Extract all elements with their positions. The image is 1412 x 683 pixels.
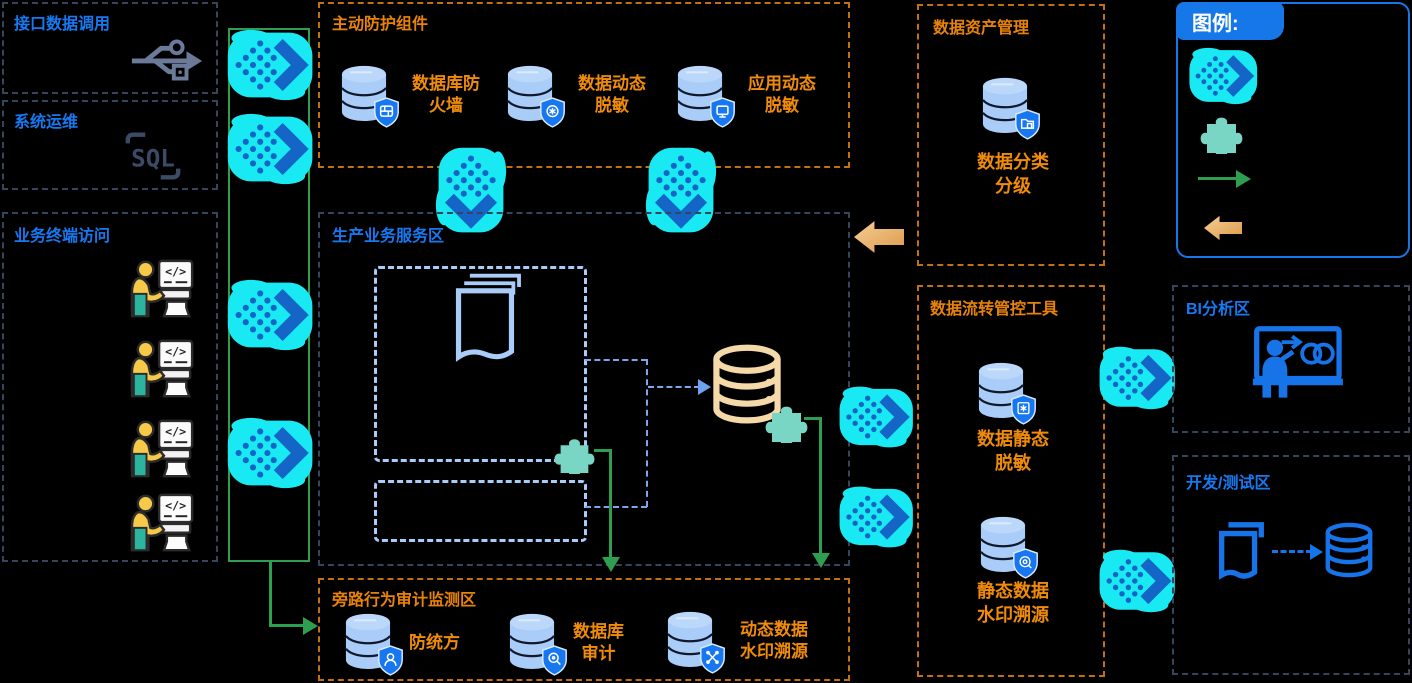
database-shield-watermark-icon xyxy=(979,515,1037,577)
component-label: 防统方 xyxy=(409,632,460,654)
terminal-user-icon xyxy=(130,338,196,400)
component-label: 静态数据 水印溯源 xyxy=(938,579,1088,628)
plugin-puzzle-icon xyxy=(551,430,597,474)
plugin-puzzle-icon xyxy=(1196,108,1246,154)
connector-line xyxy=(646,359,648,507)
database-shield-search-icon xyxy=(508,612,566,674)
architecture-diagram: SQL </> 接口数据调用 系统运维 业务终 xyxy=(0,0,1412,683)
component-dynamic-watermark: 动态数据 水印溯源 xyxy=(666,610,817,672)
zone-api-access: 接口数据调用 xyxy=(2,2,218,94)
database-shield-trace-icon xyxy=(666,610,724,672)
connector-line xyxy=(585,506,647,508)
manage-flow-arrow-icon xyxy=(1204,214,1242,242)
plugin-puzzle-icon xyxy=(762,397,810,443)
connector-arrow-line xyxy=(648,386,700,388)
zone-system-ops-title: 系统运维 xyxy=(14,108,78,132)
component-anti-tongfang: 防统方 xyxy=(344,612,460,674)
connector-line xyxy=(585,359,647,361)
data-flow-arrow-icon xyxy=(838,481,916,553)
database-shield-person-icon xyxy=(344,612,402,674)
zone-terminal-access: 业务终端访问 xyxy=(2,212,218,562)
app-server-rect xyxy=(374,480,587,542)
zone-dev-test-title: 开发/测试区 xyxy=(1186,469,1270,493)
component-app-masking: 应用动态 脱敏 xyxy=(676,64,823,126)
documents-icon xyxy=(436,270,534,374)
zone-api-access-title: 接口数据调用 xyxy=(14,10,110,34)
component-label: 动态数据 水印溯源 xyxy=(731,619,817,663)
connector-line xyxy=(1272,550,1312,553)
zone-asset-mgmt-title: 数据资产管理 xyxy=(933,14,1029,38)
legend-header: 图例: xyxy=(1176,2,1284,40)
green-flow-line xyxy=(609,449,612,559)
data-flow-arrow-icon xyxy=(838,381,916,453)
component-label: 数据库防 火墙 xyxy=(405,73,487,117)
green-flow-arrowhead xyxy=(602,557,620,572)
database-outline-icon xyxy=(1322,521,1376,579)
database-shield-refresh-icon xyxy=(506,64,564,126)
zone-asset-mgmt: 数据资产管理 数据分类 分级 xyxy=(917,4,1105,266)
bi-presentation-icon xyxy=(1246,323,1344,413)
zone-audit-title: 旁路行为审计监测区 xyxy=(332,586,476,610)
zone-system-ops: 系统运维 xyxy=(2,100,218,190)
zone-active-protection-title: 主动防护组件 xyxy=(332,10,428,34)
component-label: 数据分类 分级 xyxy=(943,150,1083,199)
terminal-user-icon xyxy=(130,258,196,320)
green-flow-line xyxy=(269,624,305,627)
data-flow-arrow-icon xyxy=(226,112,316,186)
database-shield-folder-icon xyxy=(981,76,1039,138)
component-dynamic-masking: 数据动态 脱敏 xyxy=(506,64,653,126)
terminal-user-icon xyxy=(130,418,196,480)
terminal-user-icon xyxy=(130,492,196,554)
data-flow-arrow-icon xyxy=(1098,544,1178,618)
zone-production-title: 生产业务服务区 xyxy=(332,222,444,246)
usb-icon xyxy=(128,30,206,90)
zone-terminal-access-title: 业务终端访问 xyxy=(14,222,110,246)
database-shield-screen-icon xyxy=(676,64,734,126)
green-flow-arrowhead xyxy=(812,553,830,568)
component-db-audit: 数据库 审计 xyxy=(508,612,624,674)
zone-flow-control-title: 数据流转管控工具 xyxy=(930,295,1058,319)
data-flow-arrow-icon xyxy=(1098,341,1178,415)
zone-active-protection: 主动防护组件 数据库防 火墙 数据动态 脱敏 xyxy=(318,2,850,168)
data-flow-arrow-icon xyxy=(226,278,316,352)
sql-icon xyxy=(122,128,184,184)
data-flow-arrow-icon xyxy=(226,416,316,490)
green-flow-line xyxy=(269,560,272,626)
document-icon xyxy=(1212,515,1270,583)
zone-audit: 旁路行为审计监测区 防统方 数据库 审计 xyxy=(318,578,850,681)
data-flow-arrow-icon xyxy=(1188,46,1260,106)
manage-flow-arrow-icon xyxy=(854,214,904,260)
component-label: 数据库 审计 xyxy=(573,621,624,665)
green-flow-line xyxy=(819,417,822,555)
database-shield-star-icon xyxy=(977,361,1035,423)
legend-title: 图例: xyxy=(1192,7,1239,36)
database-shield-firewall-icon xyxy=(340,64,398,126)
legend-box: 图例: xyxy=(1176,2,1410,258)
green-flow-arrowhead xyxy=(303,617,318,635)
component-db-firewall: 数据库防 火墙 xyxy=(340,64,487,126)
zone-flow-control: 数据流转管控工具 数据静态 脱敏 静态数据 水印溯源 xyxy=(917,285,1105,677)
component-label: 数据静态 脱敏 xyxy=(943,427,1083,476)
zone-bi: BI分析区 xyxy=(1172,285,1410,433)
zone-bi-title: BI分析区 xyxy=(1186,295,1250,319)
component-label: 应用动态 脱敏 xyxy=(741,73,823,117)
data-flow-arrow-icon xyxy=(226,28,316,102)
component-label: 数据动态 脱敏 xyxy=(571,73,653,117)
zone-dev-test: 开发/测试区 xyxy=(1172,455,1410,675)
